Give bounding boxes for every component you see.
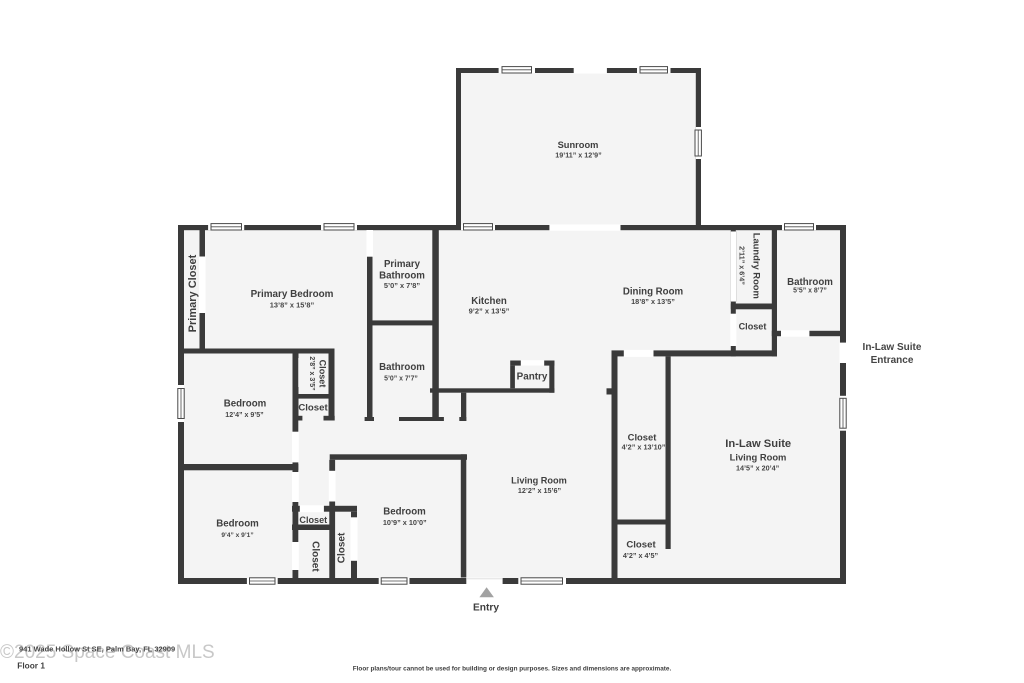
svg-text:Primary Bedroom: Primary Bedroom [251, 289, 334, 300]
svg-text:10’9” x 10’0”: 10’9” x 10’0” [383, 518, 427, 527]
svg-text:Closet: Closet [337, 532, 348, 563]
svg-text:Entry: Entry [473, 603, 499, 614]
svg-text:12’4” x 9’5”: 12’4” x 9’5” [225, 412, 263, 419]
svg-text:Bedroom: Bedroom [216, 519, 259, 530]
svg-text:Bathroom: Bathroom [787, 277, 833, 288]
svg-text:Closet: Closet [626, 540, 656, 551]
svg-text:Closet: Closet [739, 322, 767, 332]
svg-text:Kitchen: Kitchen [471, 296, 507, 307]
svg-text:Primary: Primary [384, 259, 421, 270]
svg-text:Sunroom: Sunroom [558, 140, 599, 150]
svg-text:Living Room: Living Room [730, 451, 787, 462]
svg-text:5’0” x 7’8”: 5’0” x 7’8” [384, 281, 420, 290]
svg-text:2’8” x 3’5”: 2’8” x 3’5” [308, 356, 315, 390]
svg-text:Dining Room: Dining Room [623, 286, 684, 297]
svg-text:Floor plans/tour cannot be use: Floor plans/tour cannot be used for buil… [353, 666, 672, 673]
svg-text:Bedroom: Bedroom [224, 399, 267, 410]
svg-text:Living Room: Living Room [511, 475, 567, 485]
svg-text:18’8” x 13’5”: 18’8” x 13’5” [631, 297, 675, 306]
svg-text:9’4” x 9’1”: 9’4” x 9’1” [221, 532, 253, 539]
svg-text:Laundry Room: Laundry Room [751, 233, 762, 299]
svg-text:941 Wade Hollow St SE, Palm Ba: 941 Wade Hollow St SE, Palm Bay, FL 3290… [19, 645, 175, 654]
svg-text:19’11” x 12’9”: 19’11” x 12’9” [555, 151, 602, 159]
svg-text:5’0” x 7’7”: 5’0” x 7’7” [384, 376, 418, 383]
svg-text:Bathroom: Bathroom [379, 362, 425, 373]
svg-text:4’2” x 4’5”: 4’2” x 4’5” [623, 551, 659, 560]
svg-text:Closet: Closet [309, 541, 320, 572]
svg-text:In-Law Suite: In-Law Suite [863, 342, 922, 353]
svg-text:Closet: Closet [318, 360, 328, 388]
svg-text:14’5” x 20’4”: 14’5” x 20’4” [736, 463, 780, 472]
svg-text:Entrance: Entrance [871, 355, 914, 366]
svg-text:In-Law Suite: In-Law Suite [725, 438, 791, 450]
svg-text:Pantry: Pantry [517, 372, 548, 383]
svg-text:2’11” x 6’4”: 2’11” x 6’4” [737, 246, 746, 285]
svg-text:Primary Closet: Primary Closet [187, 254, 199, 332]
svg-text:5’5” x 8’7”: 5’5” x 8’7” [793, 288, 827, 295]
svg-text:Closet: Closet [628, 432, 657, 443]
svg-text:Closet: Closet [299, 515, 327, 525]
svg-text:12’2” x 15’6”: 12’2” x 15’6” [518, 486, 562, 495]
svg-text:Floor 1: Floor 1 [17, 661, 45, 671]
svg-text:Bathroom: Bathroom [379, 271, 425, 282]
svg-text:Closet: Closet [298, 402, 328, 413]
svg-text:Bedroom: Bedroom [383, 507, 426, 518]
svg-text:9’2” x 13’5”: 9’2” x 13’5” [469, 307, 510, 316]
svg-text:13’8” x 15’8”: 13’8” x 15’8” [270, 300, 315, 309]
svg-text:4’2” x 13’10”: 4’2” x 13’10” [622, 443, 666, 452]
